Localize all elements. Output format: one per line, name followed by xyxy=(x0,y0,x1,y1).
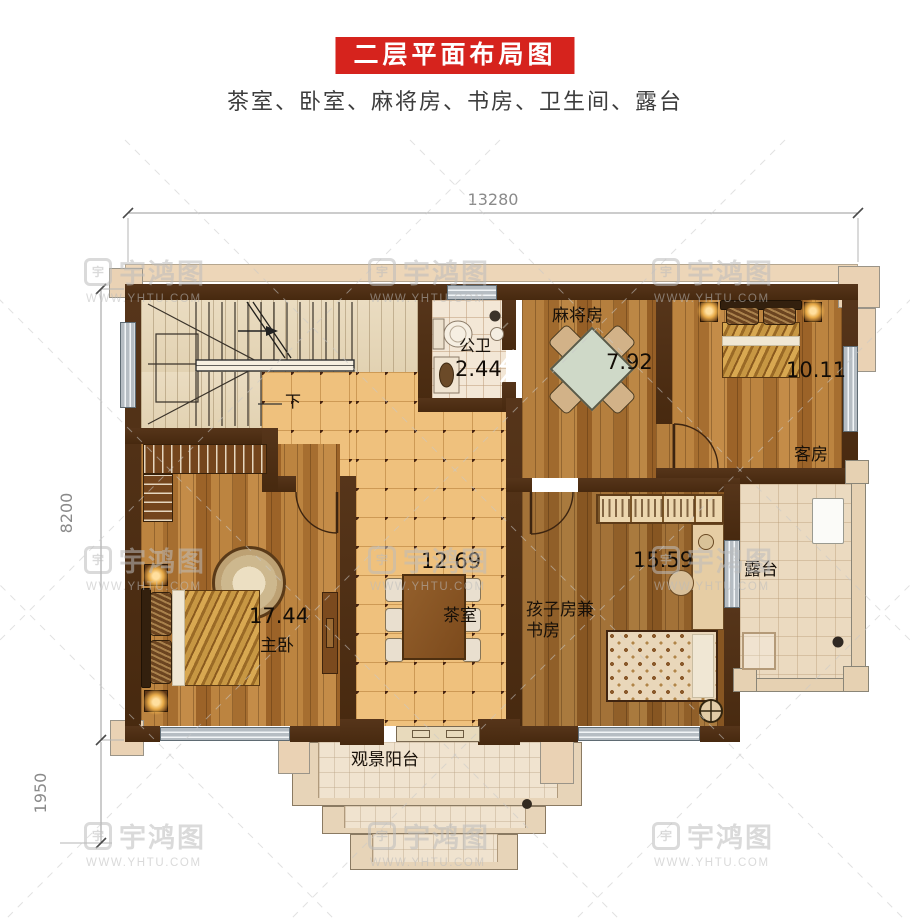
label-kids-line2: 书房 xyxy=(526,621,560,640)
watermark: 宇宇鸿图WWW.YHTU.COM xyxy=(84,816,206,869)
eave-band xyxy=(125,264,858,282)
stair-hall-floor xyxy=(141,372,262,428)
kids-bed-pillow xyxy=(692,634,714,698)
label-kids: 孩子房兼 书房 xyxy=(526,599,594,642)
guest-bed-pillow xyxy=(763,307,796,325)
window xyxy=(120,322,136,408)
balcony-floor xyxy=(344,806,526,828)
lamp-glow xyxy=(143,563,169,589)
master-bed-quilt xyxy=(172,590,260,686)
wardrobe xyxy=(143,444,267,474)
area-bathroom: 2.44 xyxy=(455,356,502,382)
window xyxy=(578,727,700,741)
label-mahjong: 麻将房 xyxy=(552,305,603,326)
corridor-floor xyxy=(656,424,672,468)
tv-set xyxy=(326,618,334,648)
terrace-railing xyxy=(851,466,866,692)
threshold-track xyxy=(412,730,430,738)
wall-segment xyxy=(340,476,356,742)
balcony-door-post xyxy=(340,719,384,745)
desk-chair xyxy=(668,570,694,596)
area-kids: 15.59 xyxy=(633,547,693,573)
wall-segment xyxy=(578,478,740,492)
wardrobe xyxy=(143,474,173,522)
wall-segment xyxy=(506,398,522,742)
terrace-appliance xyxy=(812,498,844,544)
master-bed-fold xyxy=(172,590,185,686)
balcony-door-post xyxy=(478,719,520,745)
wall-segment xyxy=(506,478,532,492)
guest-bed-fold xyxy=(722,336,800,346)
master-bed-pillow xyxy=(150,640,172,684)
wall-segment xyxy=(724,484,740,540)
area-master: 17.44 xyxy=(249,603,309,629)
page-subtitle: 茶室、卧室、麻将房、书房、卫生间、露台 xyxy=(0,84,910,116)
label-terrace: 露台 xyxy=(744,559,778,580)
stair-hall-floor xyxy=(141,300,418,372)
lamp-glow xyxy=(143,689,169,715)
balcony-door-threshold xyxy=(396,726,480,742)
wall-segment xyxy=(125,428,262,444)
wall-segment xyxy=(418,300,432,412)
window xyxy=(447,285,497,300)
label-master: 主卧 xyxy=(260,635,294,656)
label-tea: 茶室 xyxy=(443,605,477,626)
dim-top: 13280 xyxy=(468,190,519,209)
window xyxy=(724,540,740,608)
watermark: 宇宇鸿图WWW.YHTU.COM xyxy=(652,816,774,869)
label-bathroom: 公卫 xyxy=(459,337,491,357)
wall-segment xyxy=(502,300,516,350)
books xyxy=(602,499,718,517)
watermark-logo-icon: 宇 xyxy=(84,258,112,286)
wall-segment xyxy=(125,726,160,742)
page-title: 二层平面布局图 xyxy=(335,37,574,74)
area-mahjong: 7.92 xyxy=(606,349,653,375)
master-bed-pillow xyxy=(150,592,172,636)
label-balcony: 观景阳台 xyxy=(351,749,419,770)
label-guest: 客房 xyxy=(794,444,828,465)
wall-segment xyxy=(278,476,296,492)
label-stairs-down: 下 xyxy=(285,393,301,413)
terrace-rail-post xyxy=(843,666,869,692)
area-guest: 10.11 xyxy=(786,357,846,383)
wall-segment xyxy=(656,300,672,424)
lamp-glow xyxy=(801,299,825,323)
balcony-drain xyxy=(522,799,532,809)
wall-segment xyxy=(700,726,740,742)
guest-bed-pillow xyxy=(726,307,759,325)
dim-bottom-left: 1950 xyxy=(31,773,50,814)
desk-lamp xyxy=(698,534,714,550)
threshold-track xyxy=(446,730,464,738)
balcony-post xyxy=(540,736,574,784)
area-tea: 12.69 xyxy=(421,548,481,574)
balcony-floor xyxy=(372,834,498,862)
terrace-rail-post xyxy=(733,668,757,692)
terrace-rail-post xyxy=(845,460,869,484)
floor-plan-page: 二层平面布局图 茶室、卧室、麻将房、书房、卫生间、露台 xyxy=(0,0,910,920)
terrace-step xyxy=(742,632,776,670)
watermark-logo-icon: 宇 xyxy=(84,546,112,574)
watermark-logo-icon: 宇 xyxy=(84,822,112,850)
window xyxy=(160,727,290,741)
dim-left: 8200 xyxy=(57,493,76,534)
label-kids-line1: 孩子房兼 xyxy=(526,600,594,619)
watermark-logo-icon: 宇 xyxy=(652,822,680,850)
lamp-glow xyxy=(697,299,721,323)
